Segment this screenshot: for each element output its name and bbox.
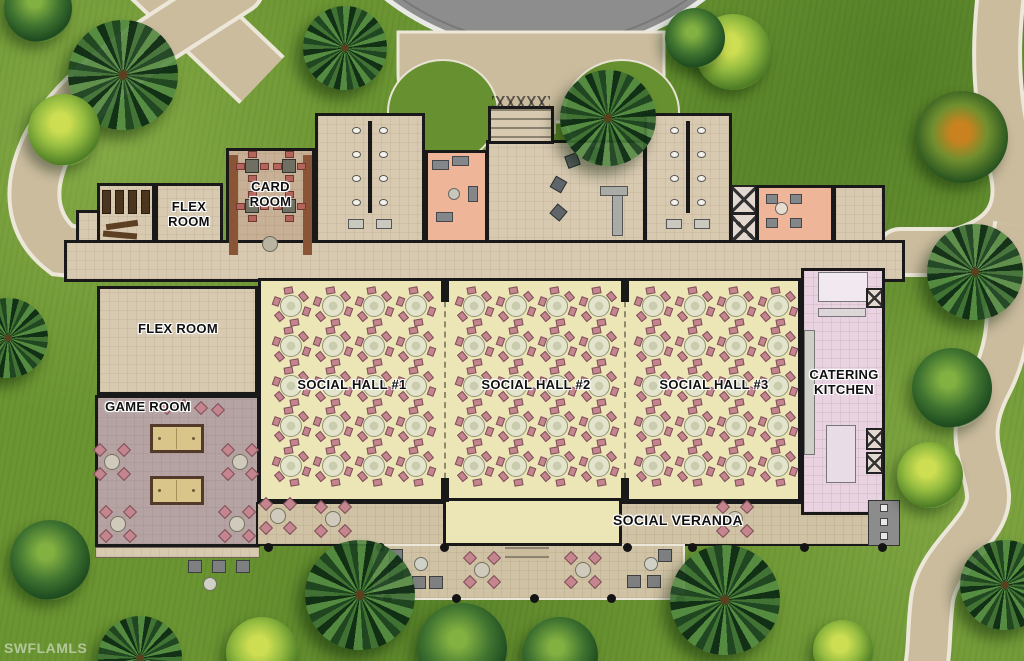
chair — [472, 358, 482, 366]
banquet-table — [767, 455, 789, 477]
bush — [897, 442, 963, 508]
banquet-table — [642, 455, 664, 477]
hall-partition-1 — [444, 281, 446, 499]
column — [530, 594, 539, 603]
flex-room-lower — [97, 286, 258, 395]
game-room-steps — [95, 547, 260, 558]
chair — [289, 358, 299, 366]
chair — [236, 163, 245, 170]
flex-room-lower-label: FLEX ROOM — [138, 322, 218, 337]
billiard-dot — [192, 489, 195, 492]
bush — [665, 8, 725, 68]
banquet-table — [322, 415, 344, 437]
chair — [514, 398, 524, 406]
banquet-table — [642, 335, 664, 357]
chair — [472, 438, 482, 446]
banquet-table — [684, 455, 706, 477]
chair — [248, 215, 257, 222]
column — [878, 543, 887, 552]
entry-vestibule — [488, 106, 554, 144]
gym-rack — [128, 190, 137, 214]
banquet-table — [588, 415, 610, 437]
toilet — [697, 199, 706, 206]
chair — [372, 358, 382, 366]
chair — [248, 151, 257, 158]
gym-rack — [141, 190, 150, 214]
palm-tree — [305, 540, 415, 650]
equipment — [880, 532, 888, 540]
patio-table — [474, 562, 490, 578]
lounge-sofa — [432, 160, 449, 170]
watermark: SWFLAMLS — [4, 640, 87, 656]
column — [440, 543, 449, 552]
lounge-sofa — [436, 212, 453, 222]
chair — [776, 318, 786, 326]
chair — [372, 398, 382, 406]
banquet-table — [767, 415, 789, 437]
column — [264, 543, 273, 552]
column — [623, 543, 632, 552]
chair — [597, 438, 607, 446]
chair — [693, 478, 703, 486]
chair — [776, 438, 786, 446]
storage-closet-1 — [731, 185, 757, 214]
chair — [331, 438, 341, 446]
chair — [331, 358, 341, 366]
chair — [285, 215, 294, 222]
banquet-table — [363, 455, 385, 477]
banquet-table — [725, 415, 747, 437]
game-room-label: GAME ROOM — [98, 400, 198, 415]
chair — [289, 478, 299, 486]
chair — [555, 358, 565, 366]
gym-rack — [102, 190, 111, 214]
kitchen-island — [826, 425, 856, 483]
card-room-label: CARD ROOM — [233, 180, 308, 209]
toilet — [697, 175, 706, 182]
patio-lounger — [188, 560, 202, 573]
chair — [555, 398, 565, 406]
banquet-table — [546, 415, 568, 437]
patio-lounger — [647, 575, 661, 588]
social-hall-2-label: SOCIAL HALL #2 — [481, 378, 590, 393]
chair — [472, 398, 482, 406]
chair — [693, 318, 703, 326]
social-hall-3-label: SOCIAL HALL #3 — [659, 378, 768, 393]
chair — [331, 398, 341, 406]
chair — [651, 438, 661, 446]
banquet-table — [405, 295, 427, 317]
toilet — [379, 127, 388, 134]
lounge-chair — [766, 218, 778, 228]
chair — [776, 358, 786, 366]
planter — [644, 557, 658, 571]
patio-table — [229, 516, 245, 532]
banquet-table — [363, 415, 385, 437]
toilet — [352, 175, 361, 182]
room-right — [833, 185, 885, 245]
billiard-line — [176, 480, 177, 501]
chair — [297, 163, 306, 170]
bush — [28, 94, 100, 166]
chair — [285, 151, 294, 158]
entry-trellis — [492, 96, 550, 108]
chair — [734, 478, 744, 486]
flex-room-upper-label: FLEX ROOM — [158, 200, 220, 229]
sink-counter — [376, 219, 392, 229]
banquet-table — [684, 335, 706, 357]
palm-tree — [927, 224, 1023, 320]
bush — [10, 520, 90, 600]
appliance — [866, 428, 883, 450]
banquet-table — [505, 335, 527, 357]
planter — [414, 557, 428, 571]
banquet-table — [280, 335, 302, 357]
banquet-table — [322, 335, 344, 357]
toilet — [697, 127, 706, 134]
reception-desk — [600, 186, 628, 196]
banquet-table — [767, 375, 789, 397]
chair — [776, 478, 786, 486]
bush — [916, 91, 1008, 183]
banquet-table — [642, 415, 664, 437]
sink-counter — [666, 219, 682, 229]
patio-table — [110, 516, 126, 532]
column — [452, 594, 461, 603]
social-veranda-label: SOCIAL VERANDA — [613, 513, 743, 529]
lounge-chair — [468, 186, 478, 202]
patio-table — [232, 454, 248, 470]
card-table — [282, 159, 296, 173]
round-table — [262, 236, 278, 252]
chair — [472, 318, 482, 326]
banquet-table — [588, 375, 610, 397]
chair — [514, 358, 524, 366]
patio-table — [325, 511, 341, 527]
banquet-table — [463, 335, 485, 357]
chair — [597, 318, 607, 326]
toilet — [670, 175, 679, 182]
chair — [651, 358, 661, 366]
chair — [372, 318, 382, 326]
billiard-dot — [192, 437, 195, 440]
patio-table — [270, 508, 286, 524]
restroom-wall — [368, 121, 372, 213]
main-corridor — [64, 240, 905, 282]
column — [688, 543, 697, 552]
lanai-projection — [443, 498, 622, 546]
chair — [776, 398, 786, 406]
banquet-table — [505, 455, 527, 477]
banquet-table — [588, 335, 610, 357]
banquet-table — [546, 295, 568, 317]
billiard-dot — [158, 489, 161, 492]
sink-counter — [694, 219, 710, 229]
round-table — [775, 202, 788, 215]
banquet-table — [363, 335, 385, 357]
banquet-table — [767, 335, 789, 357]
chair — [514, 318, 524, 326]
chair — [514, 438, 524, 446]
gym-rack — [115, 190, 124, 214]
toilet — [379, 199, 388, 206]
banquet-table — [405, 455, 427, 477]
banquet-table — [725, 295, 747, 317]
column — [607, 594, 616, 603]
chair — [597, 478, 607, 486]
bush — [912, 348, 992, 428]
banquet-table — [405, 335, 427, 357]
patio-lounger — [658, 549, 672, 562]
floor-plan-scene: FLEX ROOM CARD ROOM FLEX ROOM GAME ROOM … — [0, 0, 1024, 661]
toilet — [670, 199, 679, 206]
column — [800, 543, 809, 552]
toilet — [379, 151, 388, 158]
banquet-table — [280, 455, 302, 477]
lounge-chair — [790, 218, 802, 228]
chair — [260, 163, 269, 170]
banquet-table — [684, 415, 706, 437]
chair — [693, 398, 703, 406]
banquet-table — [546, 455, 568, 477]
banquet-table — [322, 455, 344, 477]
banquet-table — [725, 455, 747, 477]
banquet-table — [505, 295, 527, 317]
toilet — [352, 151, 361, 158]
lounge-sofa — [452, 156, 469, 166]
appliance — [866, 452, 883, 474]
chair — [289, 318, 299, 326]
banquet-table — [588, 455, 610, 477]
equipment — [880, 504, 888, 512]
banquet-table — [588, 295, 610, 317]
toilet — [352, 199, 361, 206]
palm-tree — [303, 6, 387, 90]
chair — [597, 398, 607, 406]
patio-table — [575, 562, 591, 578]
chair — [414, 358, 424, 366]
toilet — [670, 127, 679, 134]
chair — [555, 318, 565, 326]
toilet — [670, 151, 679, 158]
banquet-table — [463, 455, 485, 477]
banquet-table — [405, 375, 427, 397]
chair — [414, 398, 424, 406]
sink-counter — [348, 219, 364, 229]
chair — [472, 478, 482, 486]
banquet-table — [363, 295, 385, 317]
chair — [289, 398, 299, 406]
chair — [414, 438, 424, 446]
banquet-table — [280, 415, 302, 437]
chair — [597, 358, 607, 366]
banquet-table — [463, 415, 485, 437]
palm-tree — [670, 545, 780, 655]
banquet-table — [725, 335, 747, 357]
chair — [734, 358, 744, 366]
banquet-table — [505, 415, 527, 437]
chair — [693, 438, 703, 446]
banquet-table — [405, 415, 427, 437]
toilet — [379, 175, 388, 182]
lanai-steps — [505, 547, 549, 559]
chair — [555, 438, 565, 446]
banquet-table — [767, 295, 789, 317]
chair — [734, 438, 744, 446]
banquet-table — [684, 295, 706, 317]
chair — [372, 438, 382, 446]
chair — [651, 318, 661, 326]
planter — [203, 577, 217, 591]
chair — [372, 478, 382, 486]
card-table — [245, 159, 259, 173]
chair — [651, 478, 661, 486]
chair — [331, 478, 341, 486]
chair — [273, 163, 282, 170]
chair — [734, 318, 744, 326]
chair — [514, 478, 524, 486]
hall-partition-2 — [624, 281, 626, 499]
banquet-table — [280, 295, 302, 317]
chair — [555, 478, 565, 486]
chair — [734, 398, 744, 406]
catering-kitchen-label: CATERING KITCHEN — [803, 368, 885, 397]
patio-lounger — [429, 576, 443, 589]
chair — [289, 438, 299, 446]
chair — [651, 398, 661, 406]
patio-lounger — [236, 560, 250, 573]
banquet-table — [322, 295, 344, 317]
equipment — [880, 518, 888, 526]
banquet-table — [546, 335, 568, 357]
chair — [331, 318, 341, 326]
social-hall-1-label: SOCIAL HALL #1 — [297, 378, 406, 393]
banquet-table — [463, 295, 485, 317]
billiard-dot — [158, 437, 161, 440]
banquet-table — [642, 295, 664, 317]
appliance — [866, 288, 883, 308]
kitchen-serving — [818, 308, 866, 317]
kitchen-block — [818, 272, 868, 302]
lounge-chair — [790, 194, 802, 204]
billiard-line — [176, 428, 177, 449]
chair — [414, 318, 424, 326]
toilet — [352, 127, 361, 134]
restroom-wall — [686, 121, 690, 213]
palm-tree — [560, 70, 656, 166]
reception-desk — [612, 192, 623, 236]
patio-lounger — [627, 575, 641, 588]
chair — [414, 478, 424, 486]
chair — [693, 358, 703, 366]
round-table — [448, 188, 460, 200]
patio-table — [104, 454, 120, 470]
toilet — [697, 151, 706, 158]
patio-lounger — [212, 560, 226, 573]
lounge-chair — [766, 194, 778, 204]
